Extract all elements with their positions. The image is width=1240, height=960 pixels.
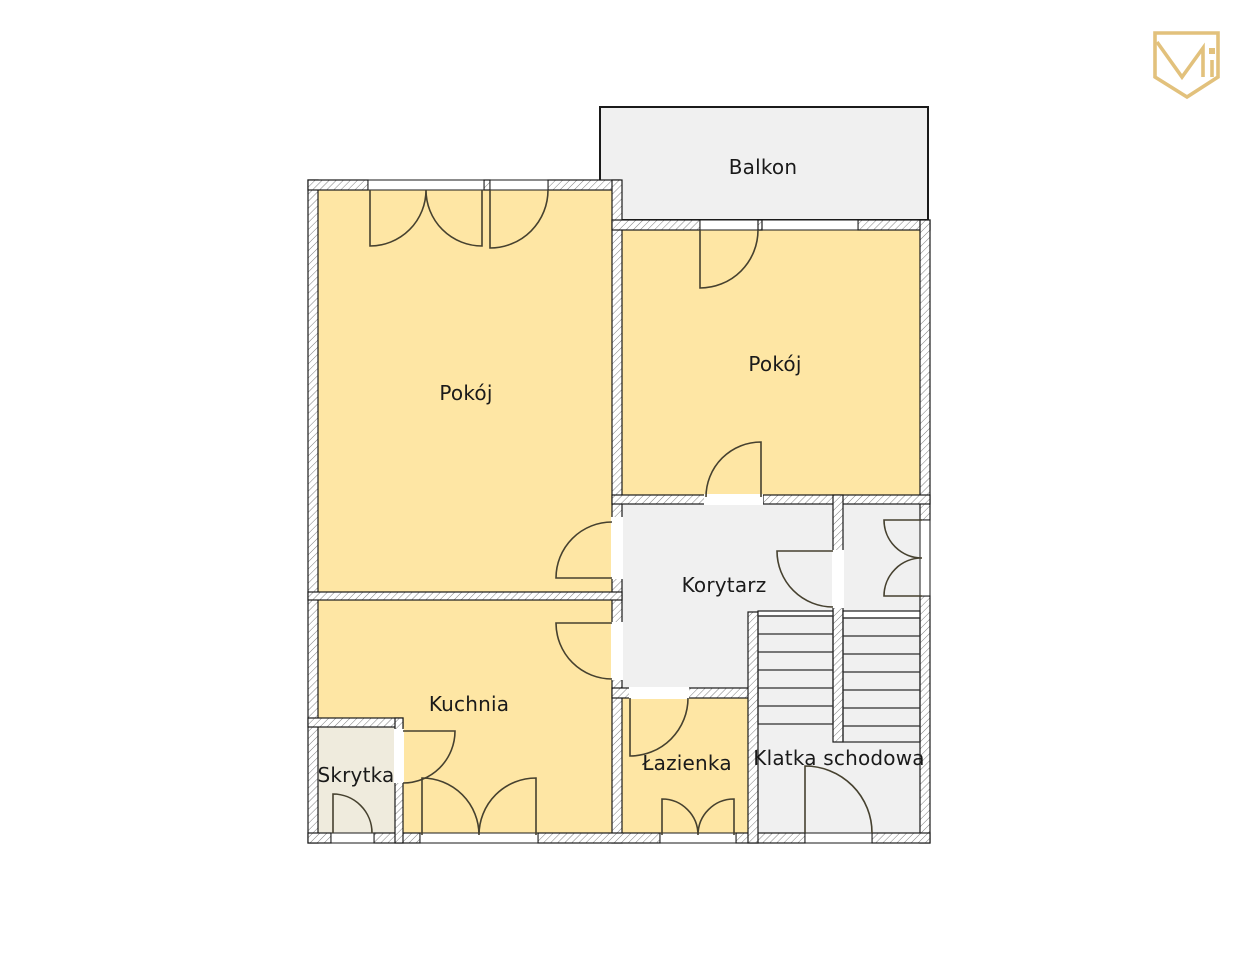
floorplan: Balkon Pokój Pokój Korytarz Kuchnia Skry… <box>0 0 1240 960</box>
floorplan-canvas: Balkon Pokój Pokój Korytarz Kuchnia Skry… <box>0 0 1240 960</box>
window-opening <box>368 180 484 190</box>
wall-segment <box>920 220 930 520</box>
stairs-top-strip <box>843 611 920 618</box>
wall-segment <box>833 495 843 551</box>
wall-segment <box>748 612 758 843</box>
door-gap <box>611 622 623 680</box>
wall-segment <box>858 220 930 230</box>
wall-segment <box>308 180 318 843</box>
wall-segment <box>833 607 843 742</box>
room-label-korytarz: Korytarz <box>682 573 767 597</box>
window-opening <box>805 833 872 843</box>
door-gap <box>629 687 689 699</box>
door-gap <box>394 729 404 783</box>
logo-monogram <box>1157 42 1203 77</box>
door-gap <box>832 550 844 608</box>
room-label-skrytka: Skrytka <box>317 763 394 787</box>
wall-segment <box>308 718 403 727</box>
wall-segment <box>395 782 403 843</box>
window-opening <box>490 180 548 190</box>
wall-segment <box>484 180 490 190</box>
wall-segment <box>308 180 368 190</box>
wall-segment <box>538 833 660 843</box>
wall-segment <box>612 688 630 698</box>
logo-dot <box>1209 48 1215 54</box>
door-gap <box>611 517 623 579</box>
stairs-top-strip <box>758 611 833 616</box>
room-label-lazienka: Łazienka <box>641 751 732 775</box>
room-label-klatka-schodowa: Klatka schodowa <box>753 746 925 770</box>
room-label-balkon: Balkon <box>729 155 798 179</box>
room-label-pokoj-left: Pokój <box>439 381 492 405</box>
window-opening <box>700 220 858 230</box>
window-opening <box>331 833 374 843</box>
wall-segment <box>612 220 700 230</box>
wall-segment <box>395 718 403 730</box>
wall-segment <box>612 679 622 843</box>
logo-shield <box>1155 33 1218 97</box>
brand-logo <box>1155 33 1218 97</box>
wall-segment <box>308 592 622 600</box>
wall-segment <box>612 495 705 504</box>
wall-segment <box>920 596 930 843</box>
window-mullion <box>758 220 762 230</box>
wall-segment <box>308 833 331 843</box>
room-label-kuchnia: Kuchnia <box>429 692 509 716</box>
door-gap <box>704 494 763 505</box>
wall-segment <box>612 180 622 518</box>
wall-segment <box>872 833 930 843</box>
wall-segment <box>736 833 805 843</box>
wall-segment <box>548 180 620 190</box>
room-label-pokoj-right: Pokój <box>748 352 801 376</box>
wall-segment <box>763 495 930 504</box>
